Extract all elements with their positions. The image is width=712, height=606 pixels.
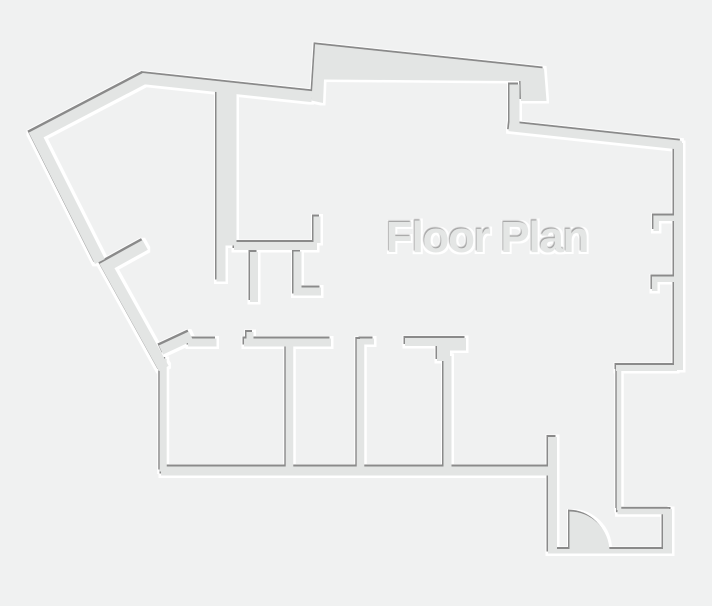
svg-text:Floor Plan: Floor Plan: [386, 213, 588, 262]
